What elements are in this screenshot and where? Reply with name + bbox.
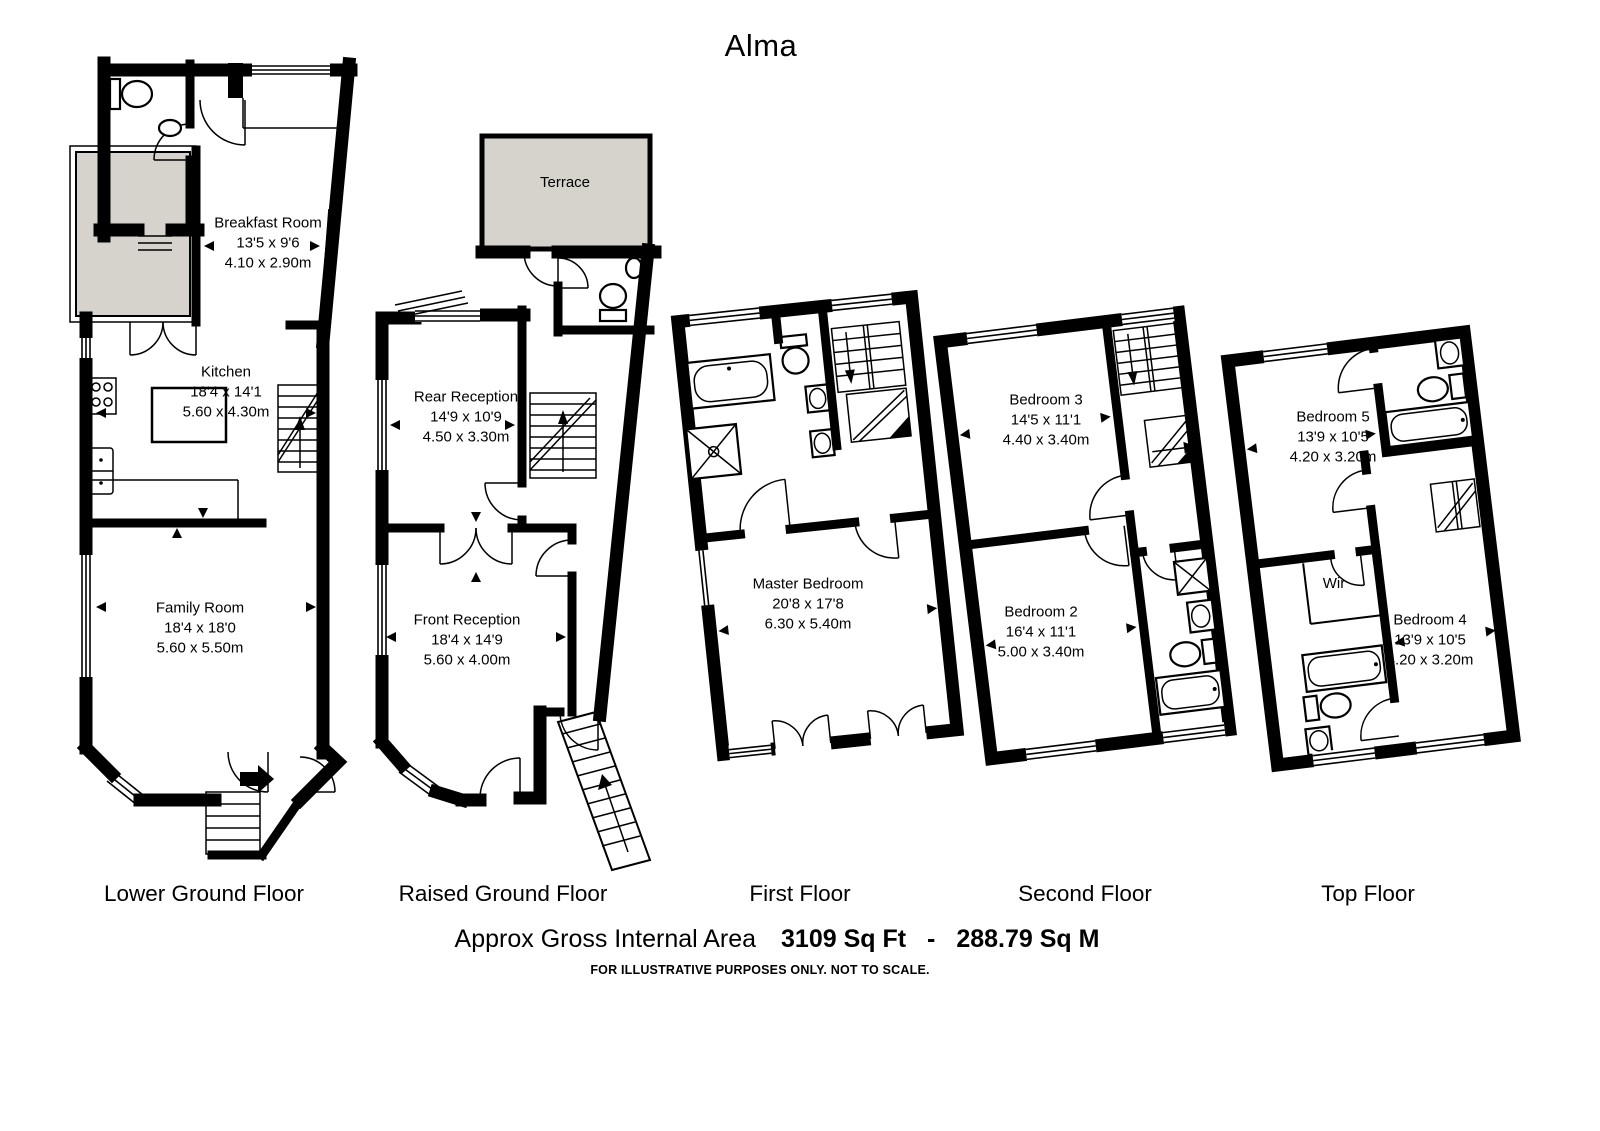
- floorplan-top-floor: [1227, 324, 1515, 773]
- staircase-icon: [278, 385, 323, 472]
- entrance-arrow-icon: [240, 765, 274, 793]
- room-dim-metric: 5.60 x 4.30m: [183, 402, 270, 422]
- room-dim-imperial: 13'9 x 10'5: [1290, 427, 1377, 447]
- toilet-icon: [780, 334, 810, 375]
- staircase-icon: [1430, 479, 1480, 532]
- floorplan-first-floor: [670, 289, 958, 763]
- staircase-icon: [530, 393, 596, 478]
- room-dim-metric: 4.20 x 3.20m: [1290, 447, 1377, 467]
- floor-label-lower-ground: Lower Ground Floor: [104, 881, 304, 907]
- room-name: Front Reception: [414, 610, 521, 630]
- room-dim-metric: 4.40 x 3.40m: [1003, 430, 1090, 450]
- room-dim-imperial: 13'9 x 10'5: [1387, 630, 1474, 650]
- toilet-icon: [110, 79, 152, 109]
- area-separator: -: [927, 925, 935, 953]
- room-name: Wir: [1323, 574, 1346, 594]
- area-sqm: 288.79 Sq M: [956, 925, 1099, 953]
- area-sqft: 3109 Sq Ft: [781, 925, 906, 953]
- gross-internal-area: Approx Gross Internal Area 3109 Sq Ft - …: [0, 925, 1554, 954]
- floorplan-page: Alma: [0, 0, 1600, 1131]
- staircase-icon: [831, 322, 911, 443]
- toilet-icon: [1417, 373, 1467, 403]
- floorplan-second-floor: [939, 304, 1231, 766]
- bathtub-icon: [687, 354, 774, 408]
- floorplan-canvas: [0, 0, 1600, 1131]
- room-name: Master Bedroom: [753, 574, 864, 594]
- kitchen-sink-icon: [89, 448, 113, 494]
- room-dim-imperial: 14'5 x 11'1: [1003, 410, 1090, 430]
- shower-icon: [1174, 558, 1211, 595]
- room-dim-imperial: 18'4 x 14'1: [183, 382, 270, 402]
- room-name: Bedroom 3: [1003, 390, 1090, 410]
- room-label-bedroom-2: Bedroom 2 16'4 x 11'1 5.00 x 3.40m: [998, 602, 1085, 661]
- sink-icon: [1435, 337, 1464, 368]
- sink-icon: [159, 120, 181, 136]
- room-dim-metric: 4.10 x 2.90m: [214, 253, 322, 273]
- room-dim-metric: 5.60 x 5.50m: [156, 638, 244, 658]
- room-dim-imperial: 14'9 x 10'9: [414, 407, 518, 427]
- room-name: Terrace: [540, 173, 590, 193]
- room-dim-metric: 4.50 x 3.30m: [414, 427, 518, 447]
- floorplan-raised-ground: [374, 136, 655, 870]
- room-label-bedroom-4: Bedroom 4 13'9 x 10'5 4.20 x 3.20m: [1387, 610, 1474, 669]
- room-dim-metric: 6.30 x 5.40m: [753, 614, 864, 634]
- room-dim-imperial: 13'5 x 9'6: [214, 233, 322, 253]
- room-dim-metric: 4.20 x 3.20m: [1387, 650, 1474, 670]
- room-name: Breakfast Room: [214, 213, 322, 233]
- toilet-icon: [600, 284, 626, 321]
- room-label-terrace: Terrace: [540, 173, 590, 193]
- shower-icon: [686, 424, 741, 479]
- room-label-family-room: Family Room 18'4 x 18'0 5.60 x 5.50m: [156, 598, 244, 657]
- room-dim-imperial: 20'8 x 17'8: [753, 594, 864, 614]
- area-label: Approx Gross Internal Area: [455, 925, 757, 953]
- room-name: Bedroom 2: [998, 602, 1085, 622]
- room-label-bedroom-3: Bedroom 3 14'5 x 11'1 4.40 x 3.40m: [1003, 390, 1090, 449]
- toilet-icon: [1303, 692, 1352, 721]
- room-dim-imperial: 18'4 x 14'9: [414, 630, 521, 650]
- floorplan-lower-ground: [70, 62, 351, 855]
- room-label-wir: Wir: [1323, 574, 1346, 594]
- sink-icon: [1187, 600, 1215, 633]
- room-name: Bedroom 4: [1387, 610, 1474, 630]
- room-name: Bedroom 5: [1290, 407, 1377, 427]
- room-dim-imperial: 18'4 x 18'0: [156, 618, 244, 638]
- disclaimer-text: FOR ILLUSTRATIVE PURPOSES ONLY. NOT TO S…: [0, 963, 1520, 977]
- room-name: Rear Reception: [414, 387, 518, 407]
- room-label-bedroom-5: Bedroom 5 13'9 x 10'5 4.20 x 3.20m: [1290, 407, 1377, 466]
- bathtub-icon: [1302, 645, 1386, 691]
- room-label-rear-reception: Rear Reception 14'9 x 10'9 4.50 x 3.30m: [414, 387, 518, 446]
- floor-label-first: First Floor: [749, 881, 850, 907]
- floor-label-raised-ground: Raised Ground Floor: [399, 881, 608, 907]
- room-dim-metric: 5.00 x 3.40m: [998, 642, 1085, 662]
- room-label-kitchen: Kitchen 18'4 x 14'1 5.60 x 4.30m: [183, 362, 270, 421]
- room-dim-imperial: 16'4 x 11'1: [998, 622, 1085, 642]
- room-label-front-reception: Front Reception 18'4 x 14'9 5.60 x 4.00m: [414, 610, 521, 669]
- room-dim-metric: 5.60 x 4.00m: [414, 650, 521, 670]
- external-steps-icon: [558, 712, 650, 870]
- floor-label-top: Top Floor: [1321, 881, 1415, 907]
- room-label-master-bedroom: Master Bedroom 20'8 x 17'8 6.30 x 5.40m: [753, 574, 864, 633]
- toilet-icon: [1169, 639, 1217, 668]
- bathtub-icon: [1156, 670, 1225, 715]
- room-name: Family Room: [156, 598, 244, 618]
- room-name: Kitchen: [183, 362, 270, 382]
- room-label-breakfast-room: Breakfast Room 13'5 x 9'6 4.10 x 2.90m: [214, 213, 322, 272]
- floor-label-second: Second Floor: [1018, 881, 1152, 907]
